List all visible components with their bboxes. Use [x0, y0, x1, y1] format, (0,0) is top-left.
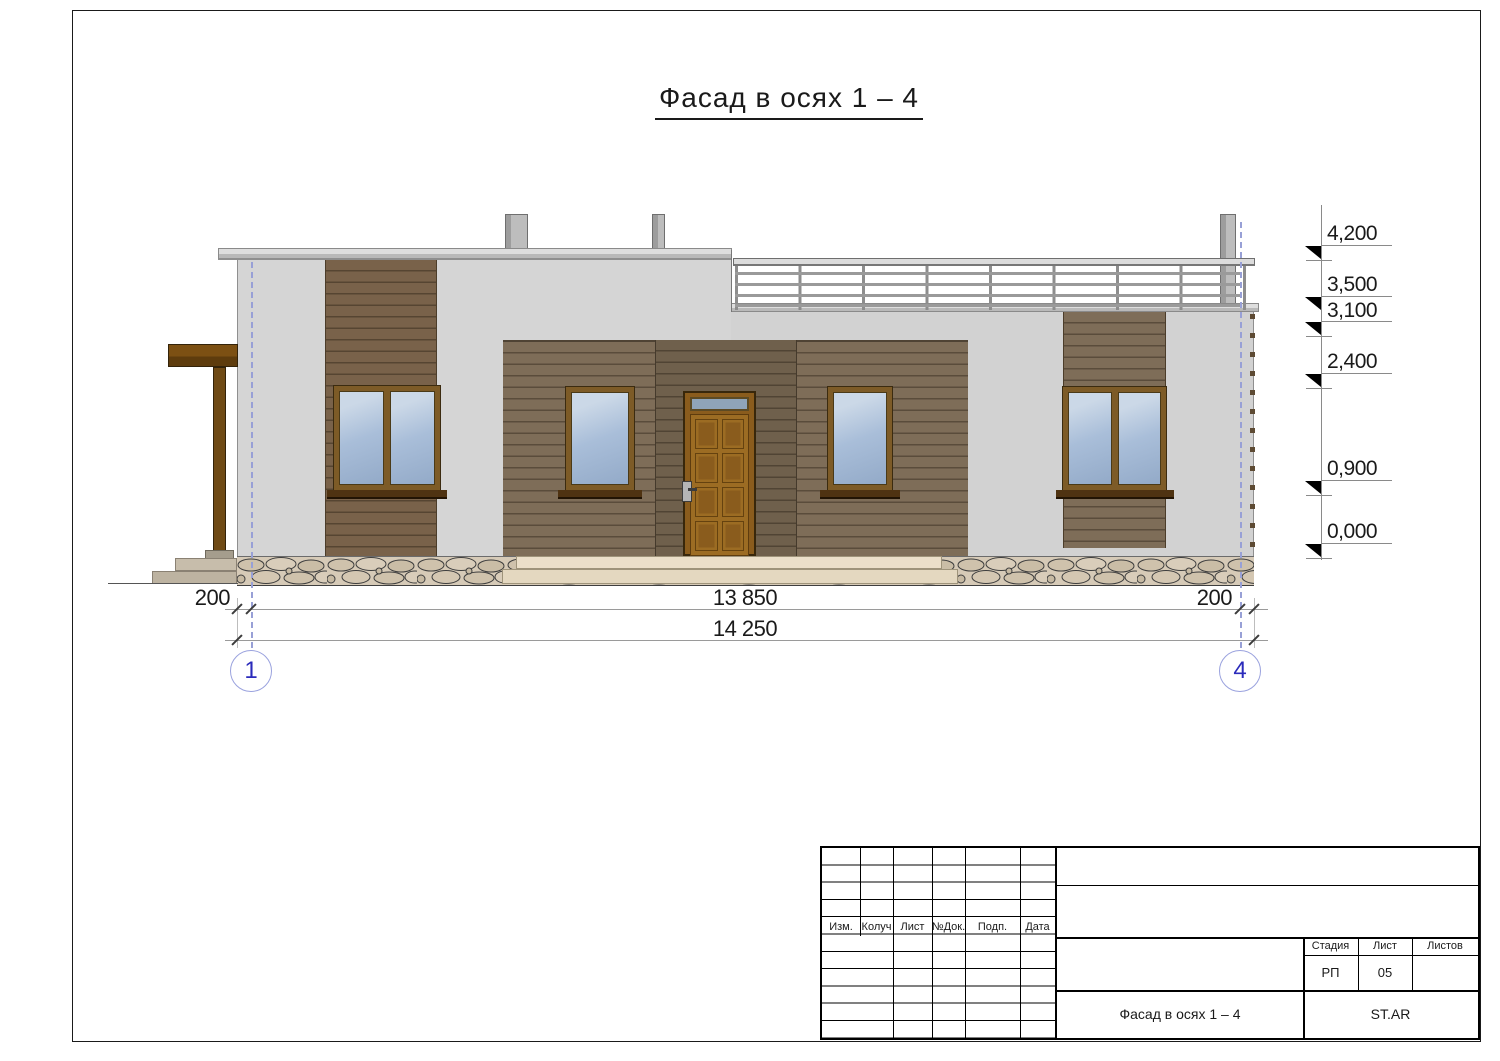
porch-step-lower	[502, 569, 958, 584]
dim-between-axes: 13 850	[640, 585, 850, 611]
tb-sheets-label: Листов	[1412, 937, 1478, 955]
canopy-post	[213, 367, 226, 553]
door-panel	[722, 453, 745, 483]
roof-railing-rail	[735, 294, 1240, 297]
tb-col-list: Лист	[893, 918, 932, 936]
door-panel	[722, 487, 745, 517]
door-transom-window	[690, 397, 749, 411]
door-handle	[682, 481, 692, 502]
window-sill	[820, 490, 900, 499]
window-sill	[327, 490, 447, 499]
roof-railing-rail	[735, 304, 1240, 307]
window-4	[1063, 387, 1166, 490]
window-sill	[1056, 490, 1174, 499]
tb-sheet-label: Лист	[1358, 937, 1412, 955]
door-panel	[695, 453, 718, 483]
drawing-sheet: Фасад в осях 1 – 4	[0, 0, 1500, 1061]
elevation-reference-line	[1321, 205, 1322, 560]
axis-line-1	[251, 262, 253, 648]
window-glass	[571, 392, 629, 485]
window-glass	[833, 392, 887, 485]
tb-stage-label: Стадия	[1303, 937, 1358, 955]
drawing-title: Фасад в осях 1 – 4	[655, 82, 923, 120]
tb-col-izm: Изм.	[822, 918, 860, 936]
porch-step-upper	[516, 556, 942, 569]
tb-col-podp: Подп.	[965, 918, 1020, 936]
window-glass	[390, 391, 435, 485]
door-panel	[722, 521, 745, 551]
window-2	[566, 387, 634, 490]
dim-total: 14 250	[640, 616, 850, 642]
window-glass	[1068, 392, 1112, 485]
canopy-beam	[168, 344, 238, 367]
door-panel	[695, 419, 718, 449]
window-glass	[1118, 392, 1162, 485]
tb-code: ST.AR	[1303, 990, 1478, 1038]
axis-bubble-4: 4	[1219, 650, 1261, 692]
right-edge-cladding	[1250, 314, 1255, 554]
door-panel	[695, 521, 718, 551]
entrance-door	[690, 414, 749, 556]
tb-sheet-value: 05	[1358, 955, 1412, 990]
window-1	[334, 386, 440, 490]
axis-bubble-1: 1	[230, 650, 272, 692]
door-panel	[722, 419, 745, 449]
side-step-upper	[175, 558, 237, 571]
tb-stage-value: РП	[1303, 955, 1358, 990]
ground-line	[108, 583, 238, 584]
window-sill	[558, 490, 642, 499]
tb-col-koluch: Колуч	[860, 918, 893, 936]
roof-railing-top-rail	[733, 258, 1255, 266]
roof-railing-rail	[735, 283, 1240, 286]
tb-col-ndok: №Док.	[932, 918, 965, 936]
window-3	[828, 387, 892, 490]
axis-line-4	[1240, 222, 1242, 648]
window-glass	[339, 391, 384, 485]
wall-section-joint	[731, 250, 732, 312]
title-block: Изм. Колуч Лист №Док. Подп. Дата Стадия …	[820, 846, 1480, 1040]
dim-right-offset: 200	[1158, 585, 1232, 611]
tb-col-data: Дата	[1020, 918, 1055, 936]
door-panel	[695, 487, 718, 517]
tb-doc-title: Фасад в осях 1 – 4	[1057, 990, 1303, 1038]
dim-left-offset: 200	[158, 585, 230, 611]
parapet-cap-left	[218, 248, 732, 260]
roof-railing-rail	[735, 272, 1240, 275]
